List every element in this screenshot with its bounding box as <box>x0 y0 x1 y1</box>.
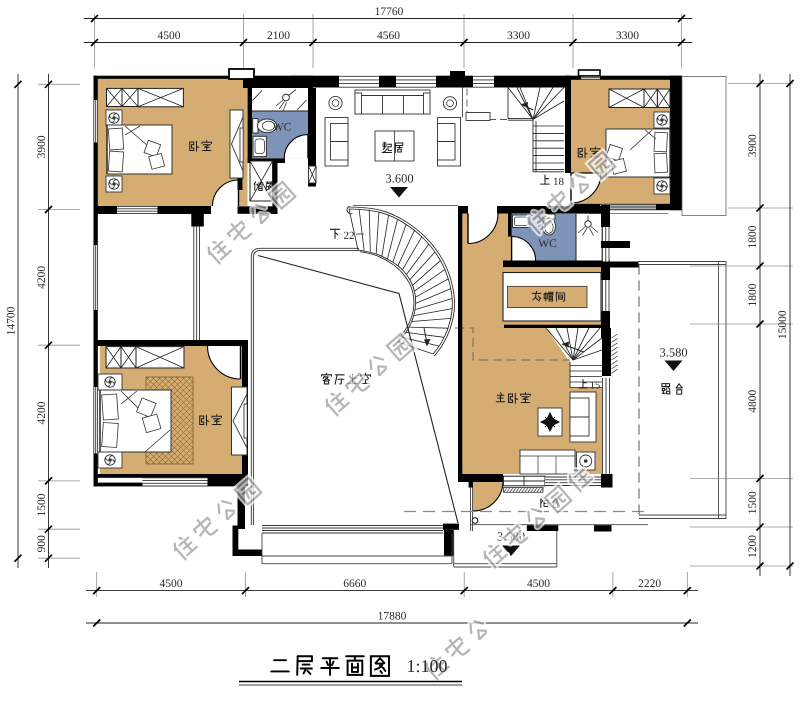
svg-text:1:100: 1:100 <box>406 656 447 676</box>
svg-text:4200: 4200 <box>36 401 48 424</box>
svg-text:1500: 1500 <box>36 493 48 516</box>
svg-text:3300: 3300 <box>616 30 639 42</box>
svg-text:17760: 17760 <box>375 6 404 18</box>
svg-text:3300: 3300 <box>507 30 530 42</box>
svg-text:1800: 1800 <box>747 283 759 306</box>
svg-text:900: 900 <box>36 535 48 553</box>
svg-text:4800: 4800 <box>747 389 759 412</box>
svg-text:4500: 4500 <box>158 30 181 42</box>
svg-text:WC: WC <box>538 238 557 250</box>
svg-text:2220: 2220 <box>638 578 661 590</box>
svg-text:1500: 1500 <box>747 491 759 514</box>
svg-text:4500: 4500 <box>527 578 550 590</box>
svg-text:2100: 2100 <box>267 30 290 42</box>
svg-text:14700: 14700 <box>6 306 18 335</box>
svg-text:4560: 4560 <box>377 30 400 42</box>
svg-text:15000: 15000 <box>777 310 789 339</box>
svg-text:3900: 3900 <box>36 135 48 158</box>
svg-text:3900: 3900 <box>747 134 759 157</box>
svg-text:3.600: 3.600 <box>385 172 413 186</box>
svg-text:4200: 4200 <box>36 266 48 289</box>
svg-text:15: 15 <box>590 381 601 392</box>
svg-text:18: 18 <box>553 176 565 188</box>
svg-text:3.580: 3.580 <box>659 346 687 360</box>
svg-text:4500: 4500 <box>160 578 183 590</box>
svg-text:6660: 6660 <box>343 578 366 590</box>
svg-text:1800: 1800 <box>747 225 759 248</box>
svg-text:17880: 17880 <box>378 611 407 623</box>
svg-text:1200: 1200 <box>747 535 759 558</box>
svg-text:WC: WC <box>273 122 292 134</box>
svg-text:22: 22 <box>344 230 355 242</box>
